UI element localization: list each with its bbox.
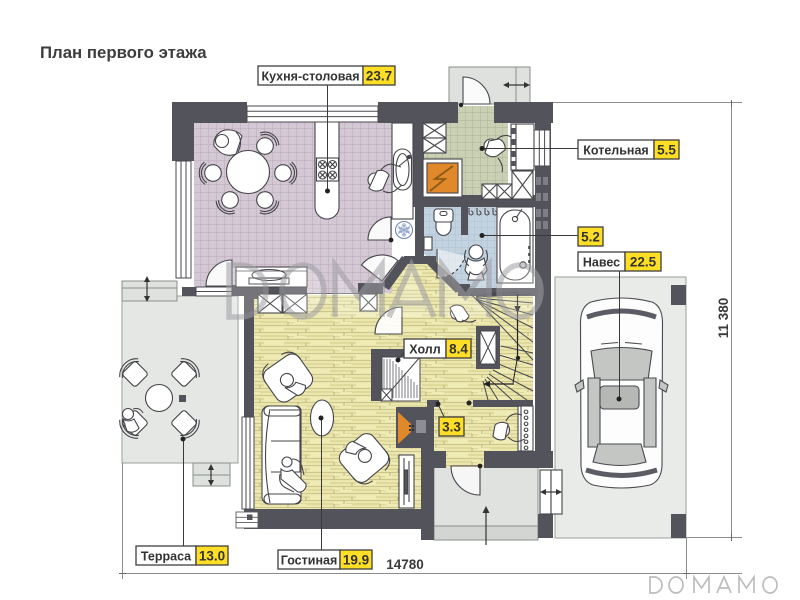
svg-text:11 380: 11 380 (716, 298, 731, 339)
svg-text:13.0: 13.0 (199, 549, 225, 564)
svg-text:План первого этажа: План первого этажа (40, 43, 207, 62)
svg-text:Холл: Холл (409, 343, 440, 357)
svg-text:3.3: 3.3 (442, 420, 461, 435)
svg-text:Гостиная: Гостиная (281, 554, 338, 568)
svg-text:Котельная: Котельная (583, 144, 648, 158)
svg-text:22.5: 22.5 (630, 255, 657, 270)
svg-text:5.5: 5.5 (657, 143, 676, 158)
svg-text:Навес: Навес (583, 256, 620, 270)
svg-text:19.9: 19.9 (343, 553, 369, 568)
svg-text:Терраса: Терраса (141, 550, 192, 564)
svg-text:23.7: 23.7 (366, 69, 392, 84)
svg-text:8.4: 8.4 (449, 342, 468, 357)
svg-text:5.2: 5.2 (581, 230, 600, 245)
svg-text:14780: 14780 (386, 557, 424, 572)
svg-text:Кухня-столовая: Кухня-столовая (261, 70, 359, 84)
